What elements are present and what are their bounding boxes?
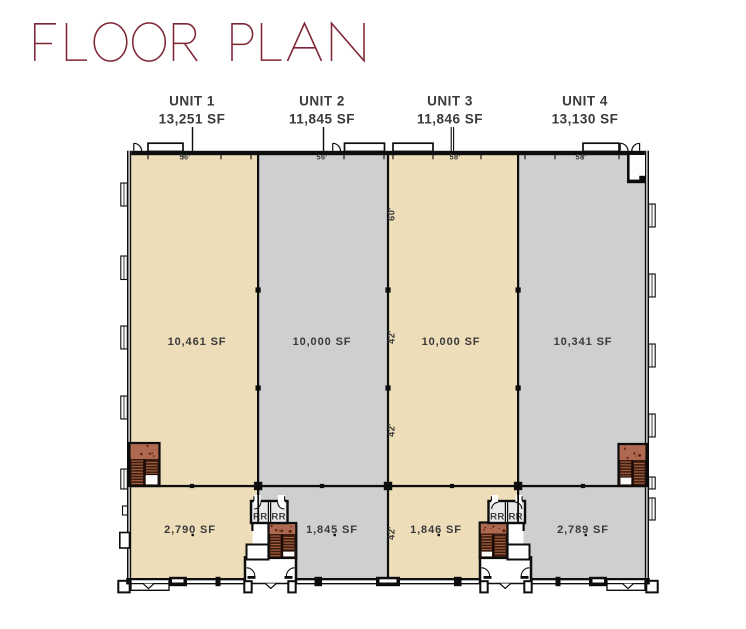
svg-text:RR: RR [271, 512, 285, 523]
svg-text:42′: 42′ [387, 423, 397, 437]
svg-text:13,251 SF: 13,251 SF [159, 112, 226, 127]
svg-text:UNIT 2: UNIT 2 [299, 94, 345, 109]
svg-text:13,130 SF: 13,130 SF [552, 112, 619, 127]
svg-text:42′: 42′ [387, 330, 397, 344]
svg-text:42′: 42′ [387, 526, 397, 540]
svg-text:11,846 SF: 11,846 SF [417, 112, 483, 127]
svg-text:1,846 SF: 1,846 SF [410, 524, 462, 536]
svg-text:11,845 SF: 11,845 SF [289, 112, 355, 127]
svg-text:UNIT 1: UNIT 1 [169, 94, 215, 109]
svg-text:2,789 SF: 2,789 SF [557, 524, 609, 536]
svg-text:RR: RR [253, 512, 267, 523]
svg-text:2,790 SF: 2,790 SF [164, 524, 216, 536]
svg-text:10,461 SF: 10,461 SF [168, 336, 227, 348]
svg-text:60′: 60′ [387, 207, 397, 221]
svg-text:1,845 SF: 1,845 SF [306, 524, 358, 536]
svg-text:56′: 56′ [317, 153, 328, 162]
svg-text:UNIT 3: UNIT 3 [427, 94, 473, 109]
svg-text:10,000 SF: 10,000 SF [293, 336, 352, 348]
svg-text:UNIT 4: UNIT 4 [562, 94, 608, 109]
svg-text:10,341 SF: 10,341 SF [554, 336, 613, 348]
svg-text:RR: RR [490, 512, 504, 523]
svg-text:RR: RR [508, 512, 522, 523]
svg-text:58′: 58′ [576, 153, 587, 162]
svg-text:58′: 58′ [450, 153, 461, 162]
svg-text:56′: 56′ [180, 153, 191, 162]
svg-text:10,000 SF: 10,000 SF [422, 336, 481, 348]
